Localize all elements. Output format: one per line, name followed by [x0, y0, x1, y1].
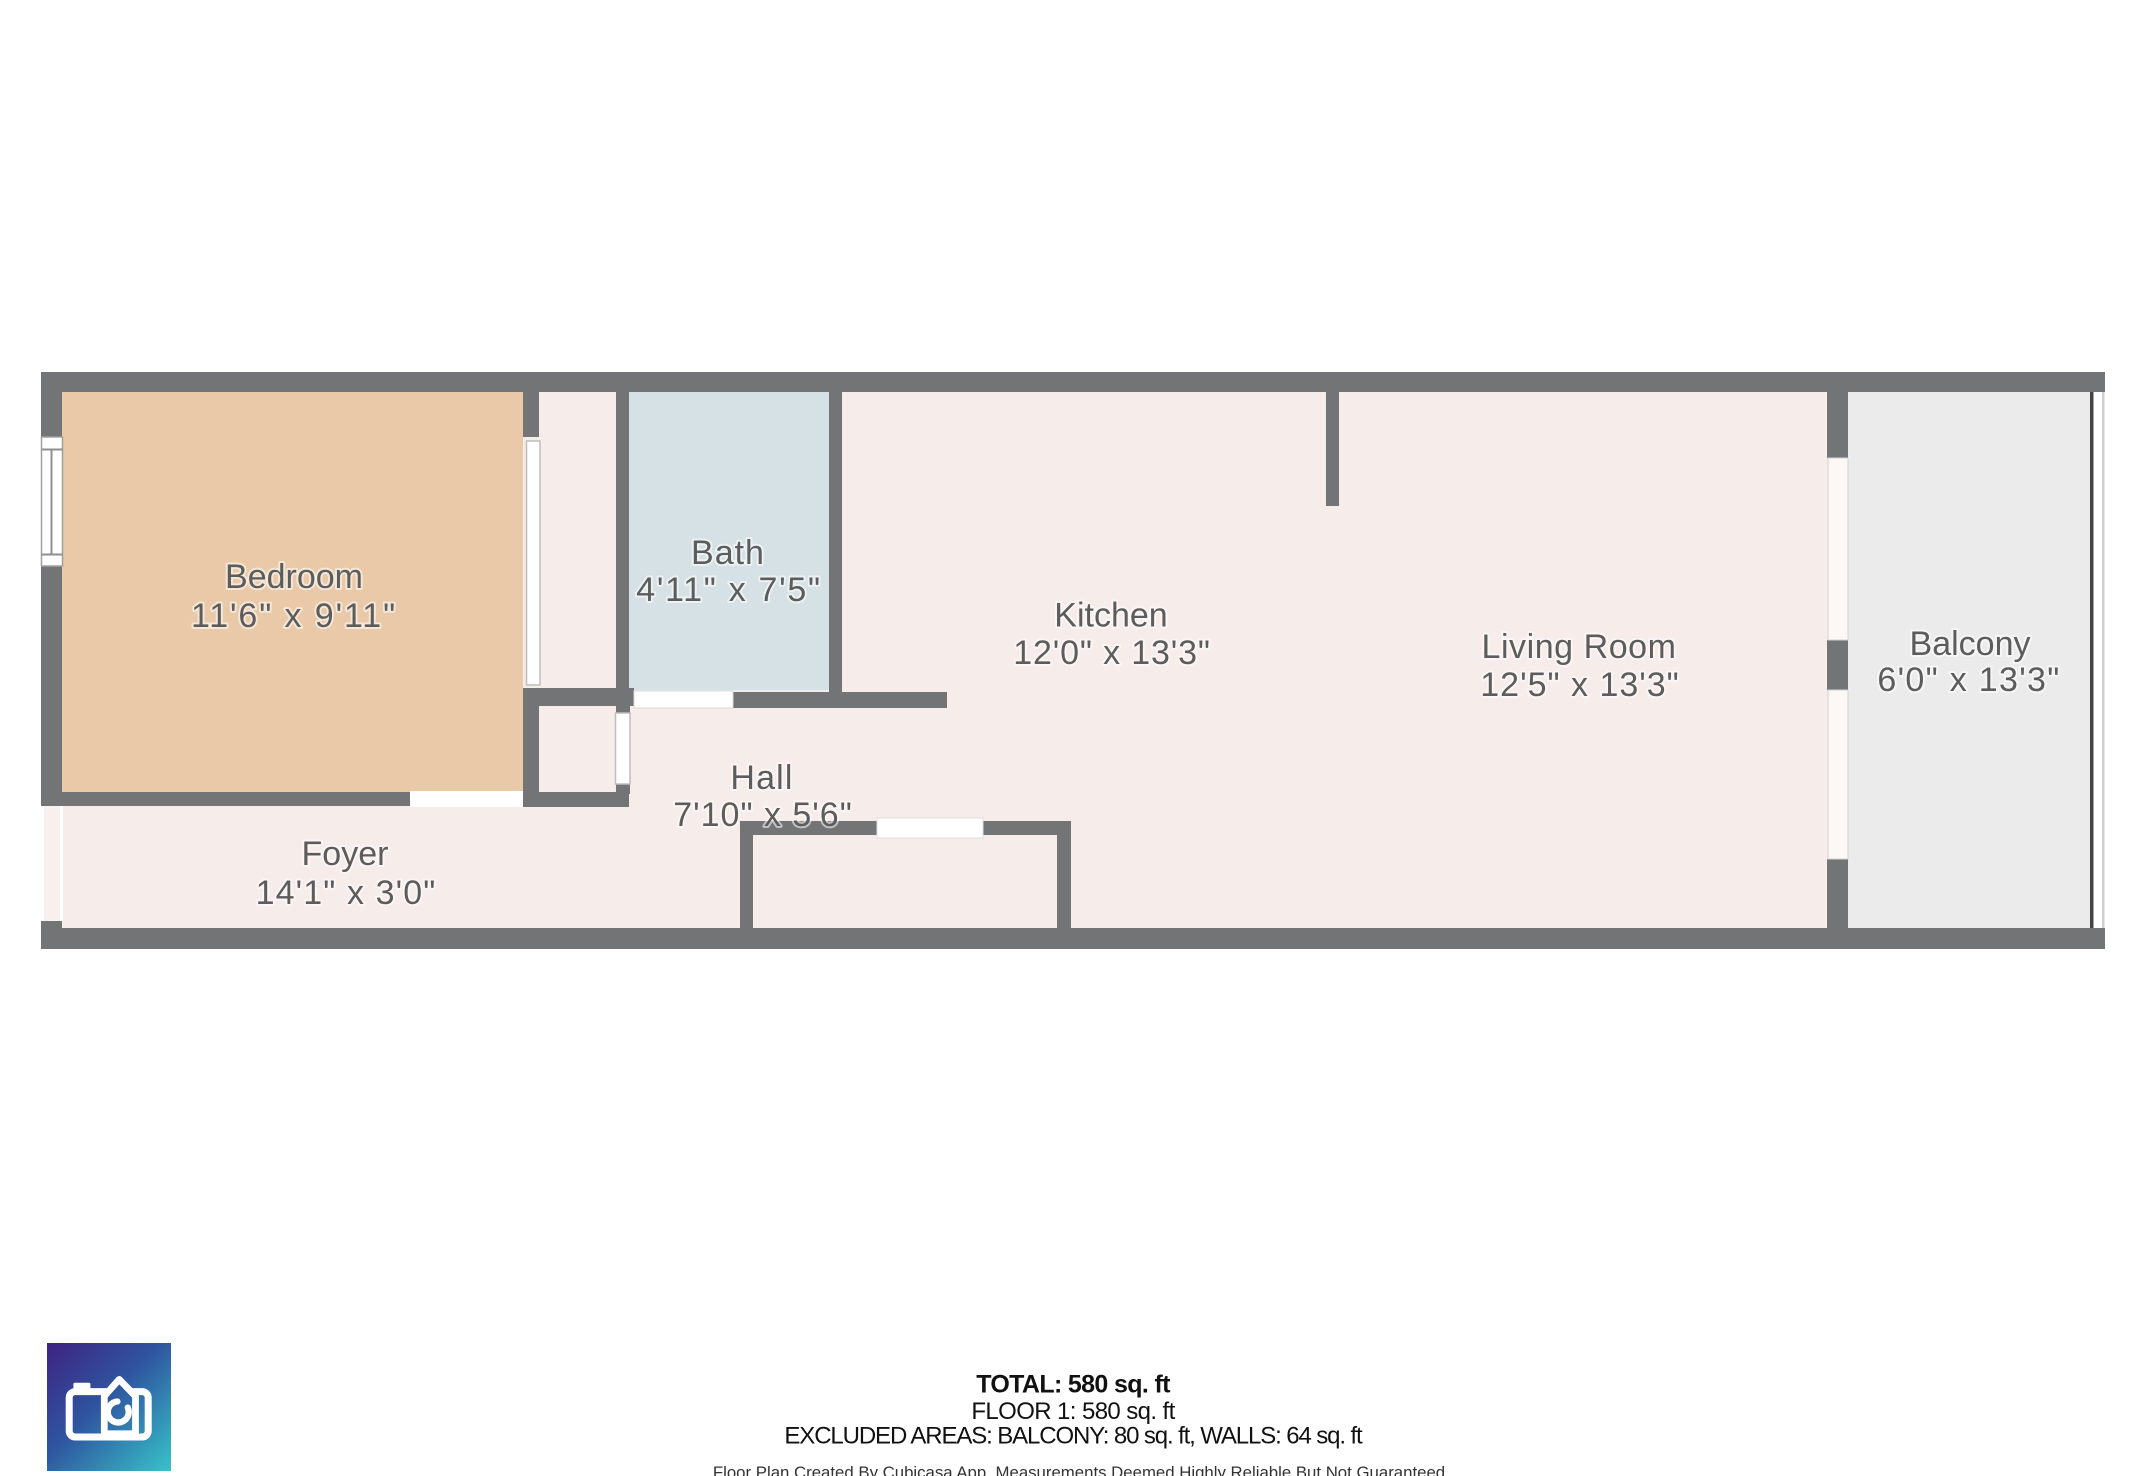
- svg-text:Bedroom: Bedroom: [225, 558, 363, 596]
- svg-text:11'6" x 9'11": 11'6" x 9'11": [191, 597, 397, 635]
- svg-text:4'11" x 7'5": 4'11" x 7'5": [636, 571, 821, 609]
- svg-text:Balcony: Balcony: [1910, 625, 2031, 663]
- svg-text:Floor Plan Created By Cubicasa: Floor Plan Created By Cubicasa App, Meas…: [713, 1463, 1445, 1476]
- svg-text:Hall: Hall: [730, 759, 793, 797]
- svg-text:TOTAL: 580 sq. ft: TOTAL: 580 sq. ft: [976, 1371, 1171, 1399]
- svg-text:Kitchen: Kitchen: [1054, 597, 1167, 635]
- svg-text:12'0" x 13'3": 12'0" x 13'3": [1013, 634, 1211, 672]
- svg-text:FLOOR 1: 580 sq. ft: FLOOR 1: 580 sq. ft: [971, 1398, 1175, 1425]
- svg-text:Foyer: Foyer: [302, 835, 389, 873]
- svg-text:Living Room: Living Room: [1481, 628, 1676, 666]
- svg-text:EXCLUDED AREAS: BALCONY: 80 sq: EXCLUDED AREAS: BALCONY: 80 sq. ft, WALL…: [784, 1423, 1363, 1450]
- svg-text:7'10" x 5'6": 7'10" x 5'6": [673, 796, 853, 834]
- svg-text:6'0" x 13'3": 6'0" x 13'3": [1877, 661, 2060, 699]
- svg-text:12'5" x 13'3": 12'5" x 13'3": [1480, 666, 1679, 704]
- svg-text:Bath: Bath: [691, 534, 765, 572]
- svg-text:14'1" x 3'0": 14'1" x 3'0": [256, 874, 437, 912]
